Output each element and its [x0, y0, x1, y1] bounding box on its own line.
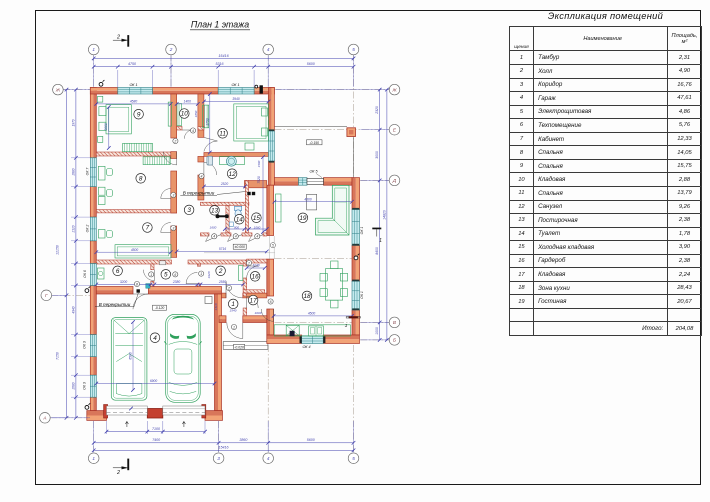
- svg-text:1140: 1140: [252, 264, 259, 268]
- svg-text:А: А: [42, 416, 46, 421]
- svg-text:1000: 1000: [375, 327, 379, 335]
- svg-text:1: 1: [231, 301, 235, 308]
- svg-text:2550: 2550: [218, 280, 227, 284]
- svg-text:19: 19: [299, 215, 307, 222]
- svg-text:900: 900: [234, 225, 239, 229]
- svg-text:1: 1: [200, 272, 202, 276]
- svg-text:1850: 1850: [194, 110, 198, 117]
- svg-text:2080: 2080: [71, 382, 75, 390]
- svg-text:3940: 3940: [232, 97, 240, 101]
- svg-text:2320: 2320: [375, 106, 379, 115]
- svg-text:16: 16: [252, 274, 260, 281]
- svg-text:4300: 4300: [304, 197, 312, 201]
- svg-text:2380: 2380: [172, 280, 181, 284]
- svg-text:Д: Д: [392, 178, 397, 183]
- svg-text:4: 4: [213, 235, 215, 239]
- svg-text:1310: 1310: [214, 303, 218, 310]
- svg-text:ОК 7: ОК 7: [85, 167, 89, 176]
- svg-text:4580: 4580: [130, 100, 138, 104]
- svg-text:2: 2: [116, 34, 120, 40]
- svg-text:5: 5: [352, 47, 355, 52]
- svg-text:4: 4: [267, 47, 270, 52]
- svg-text:Ж: Ж: [391, 87, 397, 92]
- svg-text:2520: 2520: [220, 182, 229, 186]
- svg-text:3660: 3660: [104, 123, 108, 131]
- svg-text:6: 6: [174, 273, 176, 277]
- svg-text:1970: 1970: [71, 119, 75, 126]
- svg-text:1: 1: [379, 238, 382, 244]
- svg-text:В перекрытии: В перекрытии: [183, 191, 215, 196]
- svg-text:14: 14: [236, 216, 244, 223]
- svg-text:5600: 5600: [307, 62, 315, 66]
- svg-text:5: 5: [352, 456, 355, 461]
- svg-text:1600: 1600: [255, 311, 262, 315]
- svg-text:7400: 7400: [152, 438, 160, 442]
- svg-text:17: 17: [250, 297, 258, 304]
- svg-text:ОК 3: ОК 3: [83, 341, 87, 349]
- svg-text:ОК 1: ОК 1: [360, 227, 364, 235]
- svg-text:ОК 5: ОК 5: [309, 170, 318, 174]
- svg-text:6: 6: [270, 300, 272, 304]
- svg-text:15: 15: [253, 215, 261, 222]
- svg-text:3: 3: [217, 456, 220, 461]
- svg-text:4: 4: [267, 456, 270, 461]
- svg-text:8400: 8400: [375, 247, 379, 255]
- svg-text:1500: 1500: [257, 160, 261, 167]
- svg-text:8: 8: [139, 176, 143, 183]
- svg-text:1: 1: [233, 325, 235, 329]
- svg-text:15416: 15416: [219, 446, 229, 450]
- svg-text:4: 4: [192, 129, 194, 133]
- svg-text:ОК 3: ОК 3: [83, 382, 87, 390]
- svg-text:3: 3: [187, 207, 191, 214]
- svg-text:8: 8: [136, 282, 138, 286]
- svg-text:2: 2: [227, 286, 230, 290]
- svg-text:4: 4: [256, 235, 258, 239]
- svg-text:2: 2: [169, 47, 173, 52]
- svg-text:В перекрытии: В перекрытии: [99, 302, 131, 307]
- svg-text:1400: 1400: [184, 100, 192, 104]
- svg-text:4750: 4750: [128, 62, 136, 66]
- svg-text:3: 3: [172, 193, 174, 197]
- svg-text:-0.120: -0.120: [155, 306, 165, 310]
- svg-text:1: 1: [92, 47, 95, 52]
- svg-text:2: 2: [218, 268, 223, 275]
- svg-text:5716: 5716: [219, 247, 227, 251]
- svg-text:4940: 4940: [71, 306, 75, 313]
- svg-text:2: 2: [116, 470, 120, 476]
- svg-text:7520: 7520: [257, 176, 261, 184]
- svg-text:4: 4: [235, 235, 237, 239]
- svg-text:±0.000: ±0.000: [235, 245, 245, 249]
- svg-text:5: 5: [164, 272, 168, 279]
- svg-text:13: 13: [211, 208, 219, 215]
- svg-text:4500: 4500: [308, 312, 316, 316]
- svg-text:4: 4: [201, 174, 203, 178]
- svg-text:3750: 3750: [205, 118, 209, 126]
- svg-text:2880: 2880: [71, 168, 75, 176]
- svg-text:7100: 7100: [152, 427, 160, 431]
- svg-text:18: 18: [303, 293, 311, 300]
- svg-text:1: 1: [150, 273, 152, 277]
- svg-text:5: 5: [272, 244, 274, 248]
- svg-text:15416: 15416: [218, 54, 229, 58]
- svg-text:ОК 1: ОК 1: [360, 291, 364, 299]
- svg-text:4: 4: [153, 335, 157, 342]
- svg-text:В: В: [393, 320, 396, 325]
- svg-text:9: 9: [137, 111, 141, 118]
- svg-text:5600: 5600: [307, 438, 315, 442]
- svg-text:Б: Б: [393, 338, 396, 343]
- svg-text:11: 11: [219, 131, 226, 138]
- svg-text:ОК 1: ОК 1: [129, 83, 137, 87]
- svg-text:1: 1: [345, 323, 348, 328]
- svg-text:1540: 1540: [230, 309, 237, 313]
- svg-text:10: 10: [181, 111, 189, 118]
- svg-text:Ж: Ж: [55, 87, 61, 92]
- svg-text:7: 7: [146, 225, 150, 232]
- svg-text:4500: 4500: [131, 248, 139, 252]
- svg-text:7150: 7150: [56, 352, 60, 360]
- svg-text:1060: 1060: [254, 225, 261, 229]
- svg-text:12150: 12150: [56, 245, 60, 255]
- svg-text:ОК 4: ОК 4: [302, 345, 310, 349]
- svg-text:3: 3: [172, 226, 174, 230]
- svg-text:6580: 6580: [128, 352, 132, 360]
- svg-text:1600: 1600: [210, 225, 217, 229]
- svg-text:14820: 14820: [382, 210, 386, 220]
- svg-text:3200: 3200: [120, 280, 128, 284]
- svg-text:-0.020: -0.020: [234, 345, 244, 349]
- svg-text:3000: 3000: [375, 151, 379, 159]
- svg-text:ОК 2: ОК 2: [85, 225, 89, 233]
- svg-text:План 1 этажа: План 1 этажа: [191, 20, 249, 30]
- svg-text:2: 2: [247, 261, 250, 265]
- svg-text:2120: 2120: [71, 225, 75, 233]
- svg-text:Г: Г: [45, 293, 48, 298]
- svg-text:-0.150: -0.150: [309, 141, 319, 145]
- svg-text:1920: 1920: [207, 271, 211, 278]
- svg-text:2: 2: [173, 139, 176, 143]
- svg-text:6900: 6900: [150, 379, 158, 383]
- svg-text:1: 1: [92, 456, 95, 461]
- svg-text:ОК 6: ОК 6: [83, 270, 87, 278]
- svg-text:6: 6: [116, 268, 120, 275]
- svg-text:ОК 1: ОК 1: [231, 83, 239, 87]
- svg-text:3860: 3860: [239, 438, 247, 442]
- svg-text:12: 12: [229, 171, 237, 178]
